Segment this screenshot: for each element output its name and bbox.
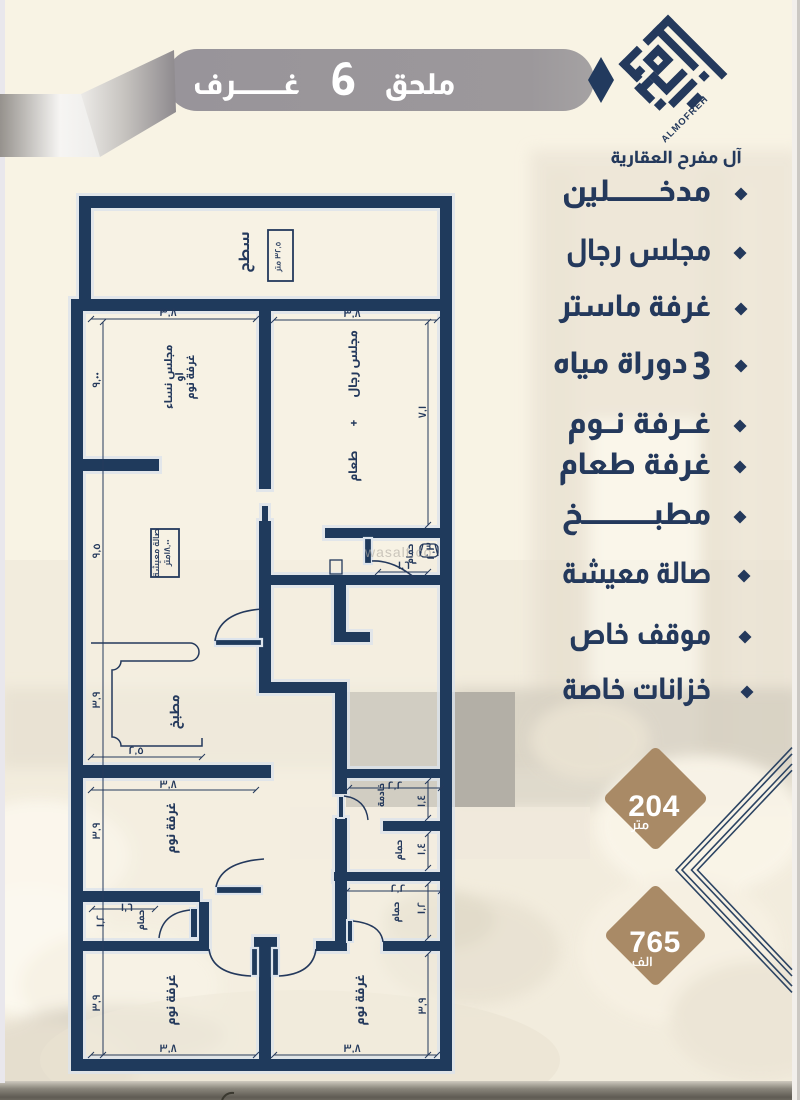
svg-text:wasalt.co: wasalt.co <box>364 544 432 560</box>
svg-text:765: 765 <box>629 926 681 959</box>
svg-text:204: 204 <box>628 790 680 823</box>
